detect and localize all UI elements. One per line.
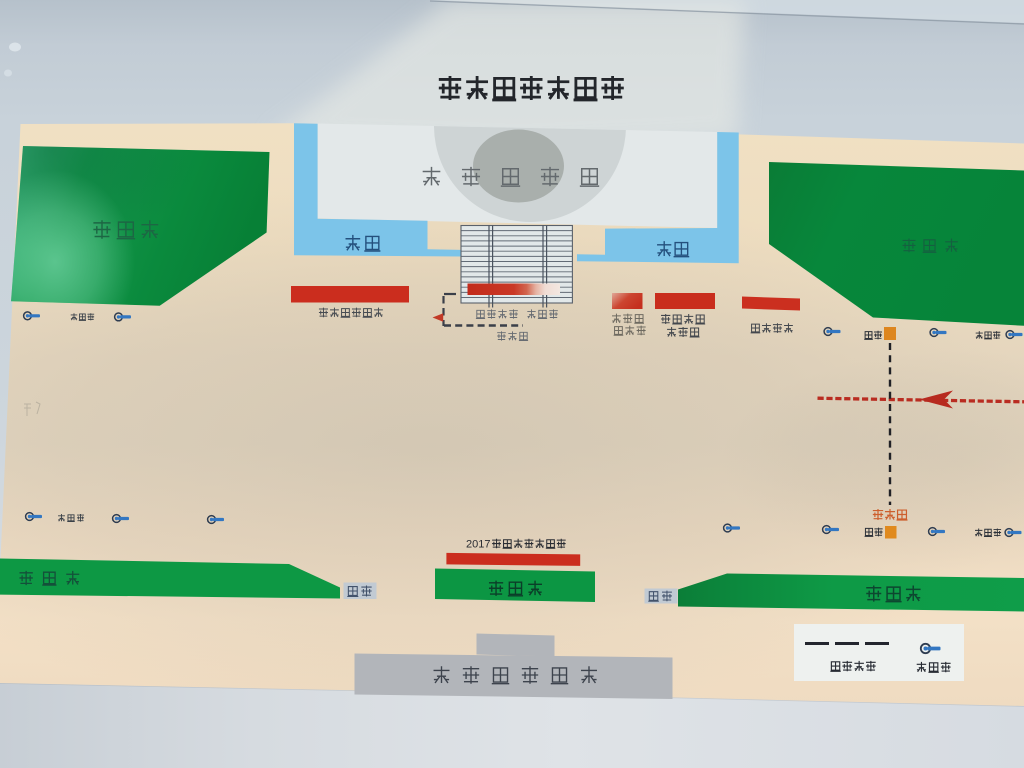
svg-text:2017: 2017 bbox=[466, 539, 490, 551]
